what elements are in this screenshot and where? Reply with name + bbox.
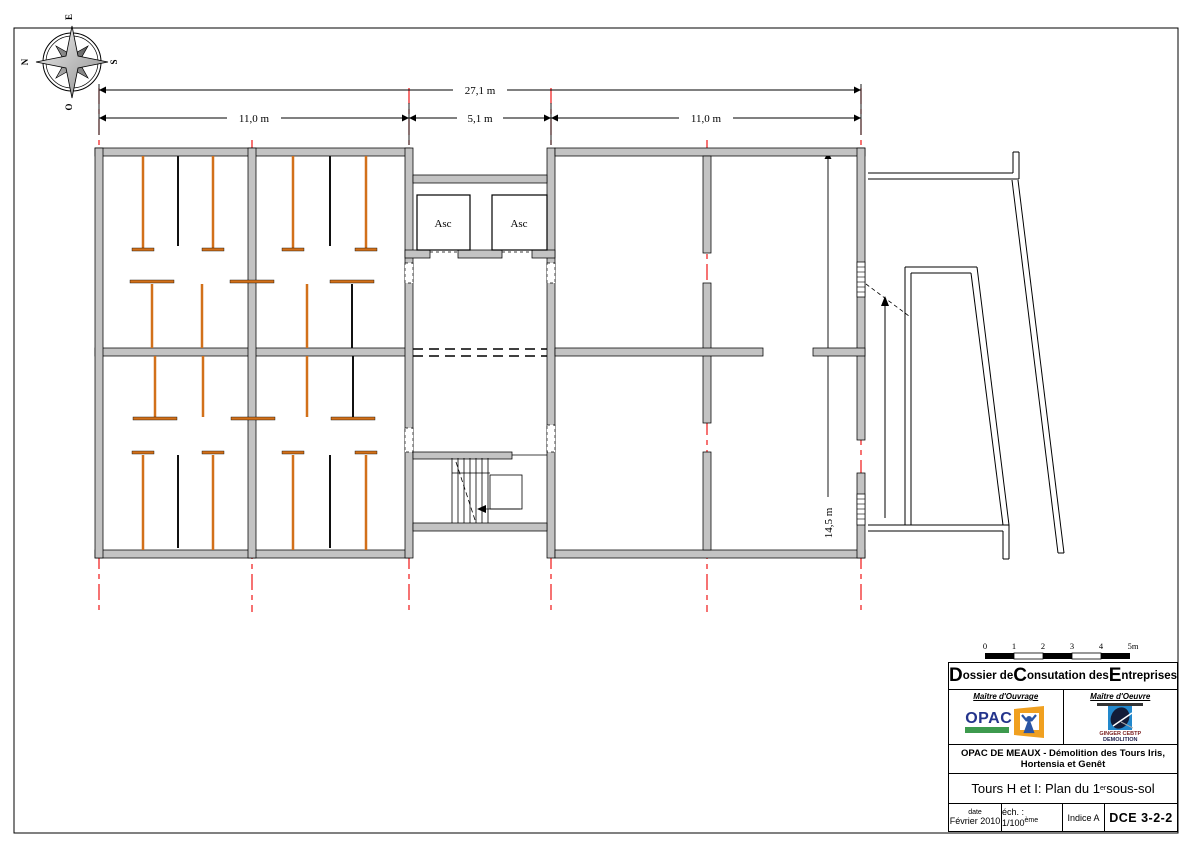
compass-south-label: S bbox=[109, 59, 119, 64]
document-code: DCE 3-2-2 bbox=[1109, 811, 1173, 825]
opac-logo-text: OPAC bbox=[965, 712, 1012, 726]
compass-west-label: O bbox=[64, 103, 74, 110]
dim-center-bay: 5,1 m bbox=[467, 113, 493, 125]
date-label: date bbox=[968, 809, 982, 816]
header-initial-d: D bbox=[949, 665, 963, 687]
dim-total: 27,1 m bbox=[465, 85, 496, 97]
document-code-cell: DCE 3-2-2 bbox=[1105, 804, 1177, 831]
ramp-up-arrow bbox=[881, 296, 889, 306]
dim-right-bay: 11,0 m bbox=[691, 113, 722, 125]
elevator-2-label: Asc bbox=[510, 218, 527, 230]
ramp-leader-line bbox=[866, 284, 909, 316]
scale-cell: éch. : 1/100ème bbox=[1002, 804, 1063, 831]
sheet-title-text: Tours H et I: Plan du 1 bbox=[971, 781, 1100, 796]
scale-tick-4: 4 bbox=[1099, 641, 1104, 651]
owner-cell: Maître d'Ouvrage OPAC bbox=[949, 690, 1063, 744]
date-cell: date Février 2010 bbox=[949, 804, 1002, 831]
header-text: ntreprises bbox=[1121, 670, 1177, 682]
scale-sup: ème bbox=[1025, 817, 1039, 824]
scale-tick-0: 0 bbox=[983, 641, 987, 651]
owner-label: Maître d'Ouvrage bbox=[973, 692, 1038, 701]
header-initial-c: C bbox=[1013, 665, 1027, 687]
opac-logo-mark bbox=[1012, 706, 1046, 738]
wall-openings bbox=[405, 263, 555, 452]
architect-label: Maître d'Oeuvre bbox=[1090, 692, 1150, 701]
ginger-logo-mark bbox=[1107, 706, 1133, 730]
elevator-1-label: Asc bbox=[434, 218, 451, 230]
elevator-shafts: Asc Asc bbox=[417, 195, 547, 252]
compass-north-label: N bbox=[20, 58, 30, 65]
scale-value: éch. : 1/100 bbox=[1002, 807, 1025, 828]
header-text: onsutation des bbox=[1027, 670, 1109, 682]
compass-east-label: E bbox=[64, 14, 74, 20]
scale-tick-1: 1 bbox=[1012, 641, 1016, 651]
dim-left-bay: 11,0 m bbox=[239, 113, 270, 125]
opac-logo-banner bbox=[965, 727, 1009, 733]
scale-tick-2: 2 bbox=[1041, 641, 1045, 651]
date-value: Février 2010 bbox=[950, 816, 1001, 826]
sheet-title: Tours H et I: Plan du 1er sous-sol bbox=[949, 774, 1177, 804]
dim-depth: 14,5 m bbox=[823, 507, 835, 538]
staircase bbox=[452, 455, 547, 523]
opac-logo: OPAC bbox=[965, 706, 1046, 738]
sheet-title-suffix: sous-sol bbox=[1106, 781, 1154, 796]
scale-tick-3: 3 bbox=[1070, 641, 1074, 651]
architect-cell: Maître d'Oeuvre GINGER CEBTP DEMOLITION bbox=[1063, 690, 1178, 744]
title-block: Dossier de Consutation des Entreprises M… bbox=[948, 662, 1178, 832]
index-value: Indice A bbox=[1067, 813, 1099, 823]
project-title-line2: Hortensia et Genêt bbox=[1021, 759, 1105, 770]
ginger-caption-line2: DEMOLITION bbox=[1099, 737, 1141, 743]
scale-tick-5: 5m bbox=[1128, 641, 1139, 651]
title-block-header: Dossier de Consutation des Entreprises bbox=[949, 663, 1177, 690]
drawing-sheet: E N S O 27,1 m 11,0 m 5,1 m 11,0 m 14,5 … bbox=[0, 0, 1191, 842]
corridor-hidden-lines bbox=[413, 349, 547, 356]
vehicle-ramp bbox=[866, 152, 1064, 559]
header-initial-e: E bbox=[1109, 665, 1122, 687]
stair-direction-arrow bbox=[477, 505, 486, 513]
ginger-logo-caption: GINGER CEBTP DEMOLITION bbox=[1099, 731, 1141, 743]
project-title: OPAC DE MEAUX - Démolition des Tours Iri… bbox=[949, 745, 1177, 774]
scale-bar: 0 1 2 3 4 5m bbox=[983, 641, 1139, 659]
project-title-line1: OPAC DE MEAUX - Démolition des Tours Iri… bbox=[961, 748, 1165, 759]
structural-walls bbox=[95, 148, 865, 558]
header-text: ossier de bbox=[963, 670, 1014, 682]
compass-main-star bbox=[36, 26, 108, 98]
index-cell: Indice A bbox=[1063, 804, 1105, 831]
